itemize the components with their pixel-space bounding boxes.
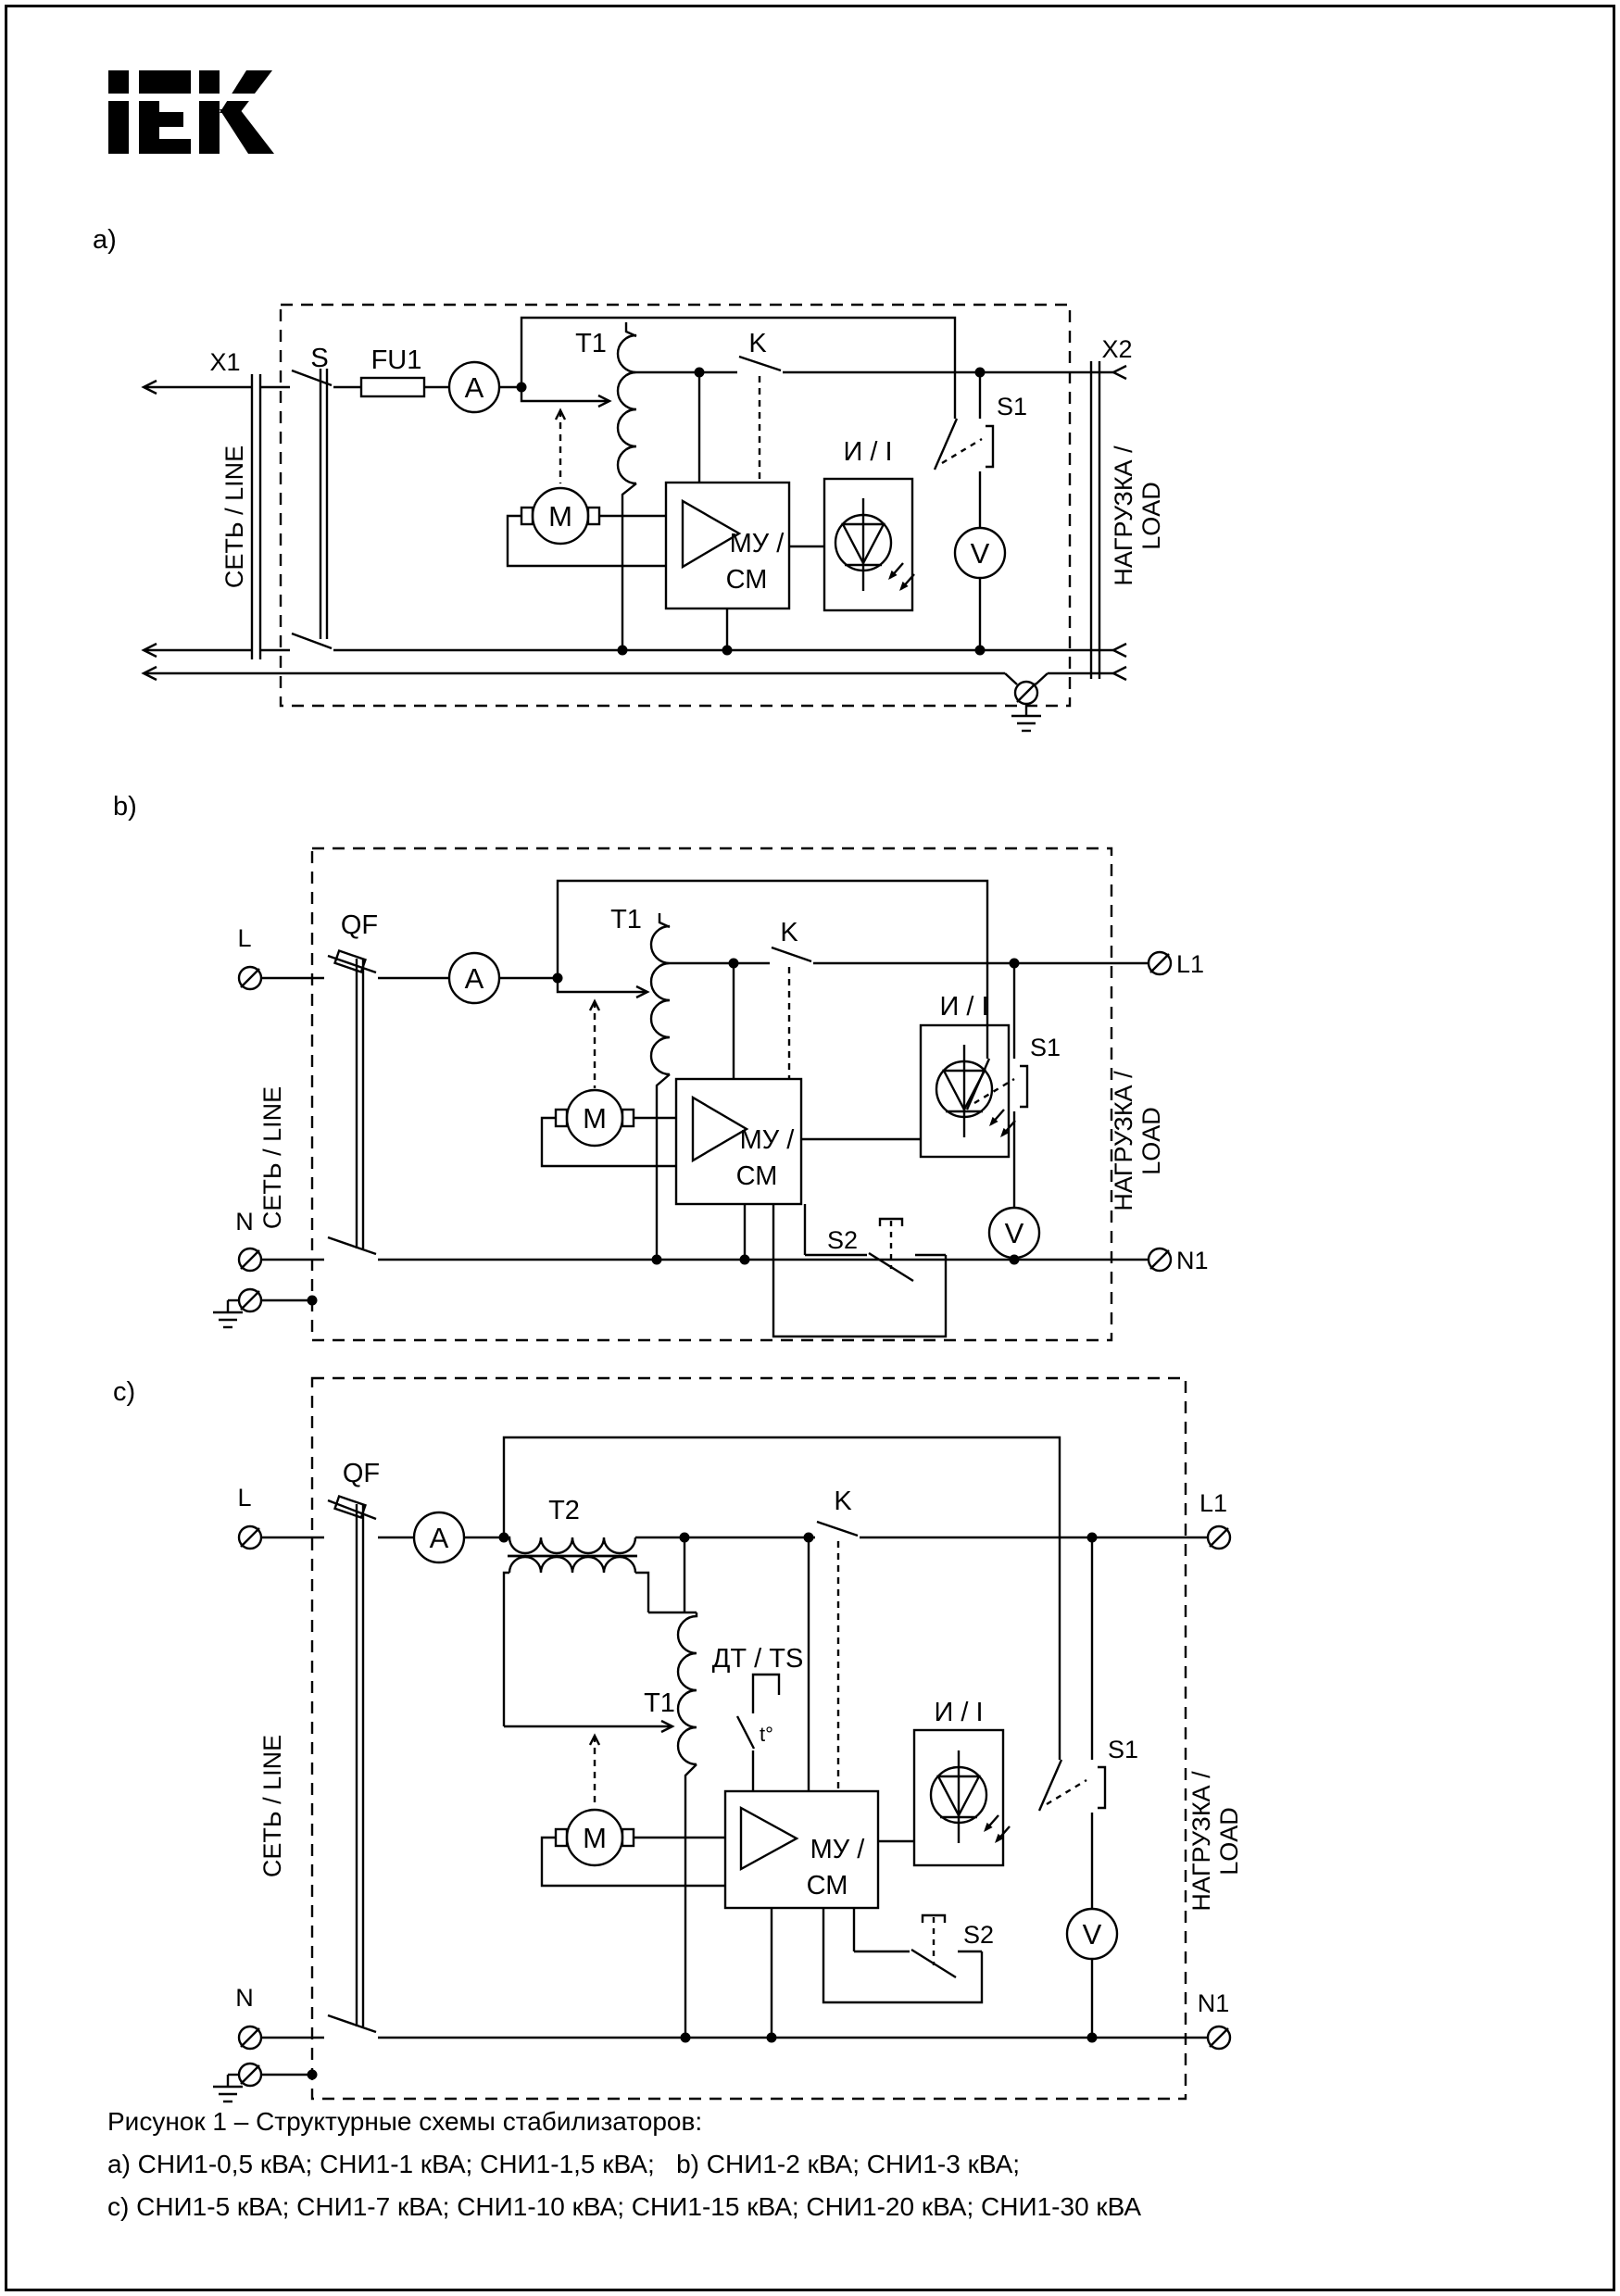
diagram-c: c) L СЕТЬ / LINE QF A	[113, 1377, 1243, 2102]
caption-line-3: c) СНИ1-5 кВА; СНИ1-7 кВА; СНИ1-10 кВА; …	[107, 2186, 1552, 2228]
terminal-n1-label-c: N1	[1198, 1989, 1230, 2017]
voltmeter-letter-a: V	[971, 537, 990, 570]
screw-terminal-icon	[1015, 682, 1037, 704]
breaker-icon	[335, 1496, 366, 1517]
terminal-n-label-c: N	[235, 1984, 254, 2012]
line-label-a: СЕТЬ / LINE	[220, 445, 248, 588]
fuse-fu1-label: FU1	[371, 345, 422, 375]
document-page: a) X1 СЕТЬ / LINE	[0, 0, 1620, 2296]
breaker-icon	[335, 950, 366, 972]
s2-label-c: S2	[963, 1921, 994, 1949]
line-label-b: СЕТЬ / LINE	[258, 1086, 286, 1229]
screw-terminal-icon	[239, 1526, 261, 1549]
wiper-c	[504, 1721, 672, 1808]
load-label2-a: LOAD	[1137, 482, 1165, 550]
indicator-a: И / I	[824, 437, 914, 610]
motor-letter-b: M	[583, 1102, 607, 1135]
diagram-b-label: b)	[113, 792, 137, 822]
motor-letter-a: M	[548, 500, 572, 533]
control-unit-label1-c: МУ /	[810, 1835, 866, 1864]
winding-icon	[618, 335, 636, 483]
diagram-a-label: a)	[93, 225, 117, 255]
t1-label-c: T1	[644, 1688, 675, 1718]
ammeter-b: A	[449, 953, 563, 1003]
screw-terminal-icon	[239, 2026, 261, 2049]
thermal-sensor-dt: ДТ / TS t°	[712, 1644, 804, 1791]
control-unit-label2-c: СМ	[807, 1871, 848, 1901]
terminal-l-label-b: L	[237, 924, 251, 952]
earth-icon	[213, 1300, 243, 1327]
ammeter-a: A	[449, 362, 499, 412]
terminal-l1-label-b: L1	[1176, 950, 1204, 978]
indicator-c: И / I	[914, 1698, 1010, 1865]
wiper-b	[558, 978, 647, 1088]
ground-terminal-b	[213, 1289, 318, 1327]
diagram-a: a) X1 СЕТЬ / LINE	[93, 225, 1165, 731]
indicator-label-a: И / I	[843, 437, 892, 467]
iek-logo	[100, 70, 285, 154]
diagram-b: b) L СЕТЬ / LINE QF A	[113, 792, 1209, 1340]
fuse-icon	[361, 378, 424, 396]
voltmeter-c: V	[1067, 1909, 1117, 2043]
qf-label-b: QF	[341, 910, 378, 940]
load-label1-c: НАГРУЗКА /	[1187, 1771, 1215, 1912]
control-unit-label2-b: СМ	[736, 1161, 778, 1191]
screw-terminal-icon	[1149, 1248, 1171, 1271]
voltmeter-letter-c: V	[1083, 1918, 1102, 1951]
transformer-t1-b: T1	[610, 905, 770, 1265]
control-unit-label1-b: МУ /	[740, 1125, 796, 1155]
winding-icon	[504, 1537, 635, 1553]
screw-terminal-icon	[239, 1248, 261, 1271]
led-icon	[931, 1750, 1010, 1843]
wiper-a	[521, 387, 609, 483]
ground-terminal-a	[1005, 673, 1048, 731]
screw-terminal-icon	[1149, 952, 1171, 974]
line-label-c: СЕТЬ / LINE	[258, 1735, 286, 1877]
amplifier-icon	[741, 1808, 797, 1869]
s1-label-b: S1	[1030, 1034, 1061, 1061]
screw-terminal-icon	[239, 2064, 261, 2086]
contactor-k-c: K	[804, 1487, 1209, 1791]
indicator-b: И / I	[921, 992, 1015, 1157]
screw-terminal-icon	[1208, 1526, 1230, 1549]
motor-m-c: M	[542, 1810, 725, 1886]
earth-icon	[1011, 704, 1041, 731]
screw-terminal-icon	[239, 1289, 261, 1311]
t1-label-a: T1	[575, 329, 607, 358]
amplifier-icon	[693, 1098, 747, 1161]
voltmeter-a: V	[955, 528, 1005, 656]
winding-icon	[678, 1612, 697, 1764]
load-label2-c: LOAD	[1215, 1807, 1243, 1876]
neutral-wiring-b: N N1	[235, 1208, 1208, 1274]
transformer-t1-a: T1	[575, 322, 737, 656]
ground-terminal-c	[213, 2064, 318, 2102]
voltmeter-letter-b: V	[1005, 1217, 1024, 1249]
load-label1-a: НАГРУЗКА /	[1110, 445, 1137, 586]
selector-s1-a: S1	[935, 377, 1027, 528]
contactor-k-a: K	[739, 329, 1126, 483]
selector-s1-c: S1	[1039, 1542, 1138, 1909]
temp-mark: t°	[760, 1723, 773, 1746]
dt-label: ДТ / TS	[712, 1644, 804, 1674]
terminal-l-label-c: L	[237, 1484, 251, 1512]
ammeter-letter: A	[465, 371, 484, 404]
control-unit-label2-a: СМ	[726, 565, 768, 595]
control-unit-label1-a: МУ /	[730, 529, 785, 558]
t1-label-b: T1	[610, 905, 642, 935]
earth-icon	[213, 2075, 243, 2102]
indicator-label-b: И / I	[939, 992, 988, 1022]
load-label1-b: НАГРУЗКА /	[1110, 1071, 1137, 1211]
ammeter-c: A	[414, 1512, 509, 1562]
caption-line-2: a) СНИ1-0,5 кВА; СНИ1-1 кВА; СНИ1-1,5 кВ…	[107, 2143, 1552, 2186]
qf-label-c: QF	[343, 1459, 380, 1488]
screw-terminal-icon	[1208, 2026, 1230, 2049]
switch-s: S	[292, 344, 332, 648]
ammeter-letter-c: A	[430, 1522, 449, 1554]
ammeter-letter-b: A	[465, 962, 484, 995]
s2-label-b: S2	[827, 1226, 858, 1254]
breaker-qf-b: QF	[328, 910, 449, 1254]
screw-terminal-icon	[239, 967, 261, 989]
control-unit-a: МУ / СМ	[666, 372, 824, 656]
terminal-x2-label: X2	[1101, 335, 1132, 363]
aux-switch-s2-c: S2	[823, 1908, 994, 2002]
s1-label-a: S1	[997, 393, 1027, 420]
winding-icon	[651, 926, 670, 1074]
voltmeter-b: V	[989, 1208, 1039, 1265]
schematics-canvas: a) X1 СЕТЬ / LINE	[0, 0, 1620, 2296]
k-label-b: K	[780, 918, 798, 947]
figure-caption: Рисунок 1 – Структурные схемы стабилизат…	[107, 2101, 1552, 2228]
fuse-fu1: FU1	[361, 345, 424, 396]
led-icon	[835, 498, 914, 591]
s1-label-c: S1	[1108, 1736, 1138, 1763]
load-label2-b: LOAD	[1137, 1107, 1165, 1175]
terminal-x1-label: X1	[209, 348, 240, 376]
k-label-a: K	[748, 329, 767, 358]
indicator-label-c: И / I	[934, 1698, 983, 1727]
diagram-c-label: c)	[113, 1377, 135, 1407]
control-unit-c: МУ / СМ	[725, 1791, 914, 2043]
terminal-l1-label-c: L1	[1199, 1489, 1227, 1517]
k-label-c: K	[834, 1487, 852, 1516]
caption-line-1: Рисунок 1 – Структурные схемы стабилизат…	[107, 2101, 1552, 2143]
terminal-n1-label-b: N1	[1176, 1247, 1209, 1274]
neutral-wiring-c: N N1	[235, 1984, 1230, 2049]
motor-letter-c: M	[583, 1822, 607, 1854]
motor-m-a: M	[508, 488, 666, 566]
terminal-l1-c: L1	[1199, 1489, 1230, 1549]
winding-icon	[509, 1557, 635, 1573]
t2-label: T2	[548, 1496, 580, 1525]
terminal-n-label-b: N	[235, 1208, 254, 1236]
breaker-qf-c: QF	[328, 1459, 414, 2032]
aux-switch-s2-b: S2	[773, 1204, 946, 1336]
terminal-l1-b: L1	[1149, 950, 1204, 978]
transformer-t1-c: T1	[644, 1612, 697, 2043]
